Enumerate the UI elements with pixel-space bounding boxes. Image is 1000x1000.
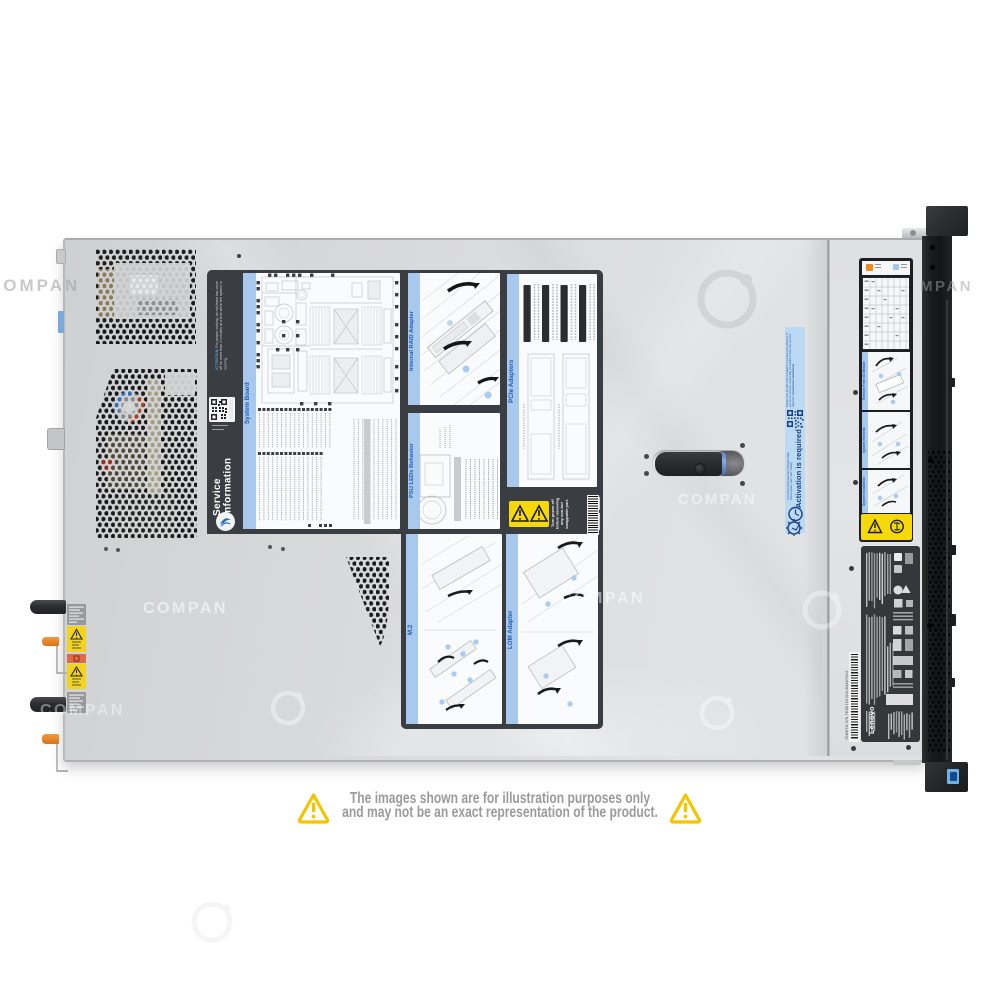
svg-text:Lenovo: Lenovo bbox=[867, 706, 876, 734]
